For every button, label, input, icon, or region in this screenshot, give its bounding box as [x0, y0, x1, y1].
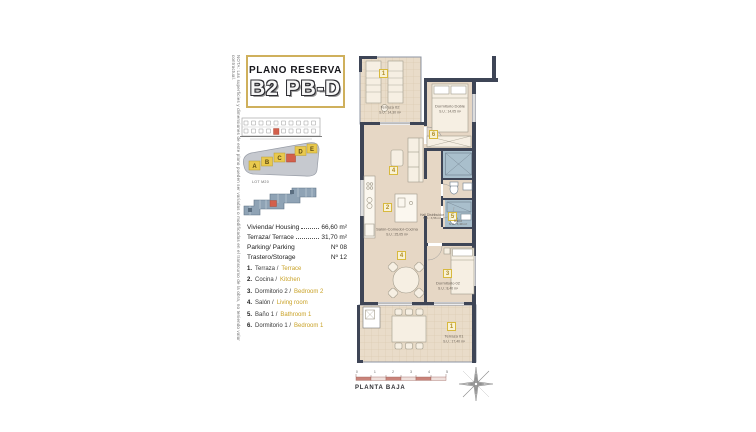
floor-plan: 1 6 4 2 5 4 3 1 Terraza 02 S.U.: 14,30 m… — [350, 48, 500, 370]
room-label-salon-comedor-cocina: Salón-Comedor-Cocina S.U.: 25,05 m² — [376, 228, 418, 237]
legend-item-dormitorio1: 6. Dormitorio 1 / Bedroom 1 — [247, 323, 323, 329]
room-area: S.U.: 14,30 m² — [379, 110, 401, 114]
legend-spanish: Terraza / — [255, 266, 278, 272]
plan-kicker: PLANO RESERVA — [248, 65, 343, 76]
legend-english: Living room — [277, 300, 308, 306]
room-area: S.U.: 14,05 m² — [435, 109, 465, 113]
legend-english: Bathroom 1 — [280, 312, 311, 318]
spec-table: Vivienda/ Housing 66,60 m² Terraza/ Terr… — [247, 221, 347, 261]
floor-plan-graphic — [350, 48, 500, 370]
plan-title: B2 PB-D — [248, 77, 343, 101]
site-block-c-label: C — [277, 156, 282, 162]
legend-english: Terrace — [281, 266, 301, 272]
spec-label: Parking/ Parking — [247, 244, 295, 251]
spec-value: 31,70 m² — [321, 234, 347, 241]
spec-row-housing: Vivienda/ Housing 66,60 m² — [247, 221, 347, 231]
badge-dormitorio-1: 6 — [429, 130, 438, 139]
plan-title-box: PLANO RESERVA B2 PB-D — [246, 55, 345, 108]
spec-value: 66,60 m² — [321, 224, 347, 231]
badge-terraza-2: 1 — [379, 69, 388, 78]
site-block-d-label: D — [298, 150, 303, 156]
scale-bar — [354, 374, 450, 384]
room-name: Terraza 02 — [379, 106, 401, 111]
room-name: Salón-Comedor-Cocina — [376, 228, 418, 233]
room-label-terraza-1: Terraza 01 S.U.: 17,40 m² — [443, 335, 465, 344]
dotted-leader — [296, 238, 320, 239]
block-plan-thumbnail — [240, 184, 320, 218]
room-area: S.U.: 8,40 m² — [436, 286, 460, 290]
legend-item-terraza: 1. Terraza / Terrace — [247, 266, 323, 272]
site-plan-thumbnail: A B C D E — [238, 141, 323, 179]
room-name: Terraza 01 — [443, 335, 465, 340]
badge-dormitorio-2: 3 — [443, 269, 452, 278]
badge-salon: 4 — [389, 166, 398, 175]
legend-item-dormitorio2: 3. Dormitorio 2 / Bedroom 2 — [247, 289, 323, 295]
site-block-e-label: E — [310, 147, 314, 153]
room-label-dormitorio-2: Dormitorio 02 S.U.: 8,40 m² — [436, 282, 460, 291]
badge-comedor: 4 — [397, 251, 406, 260]
legend-item-bano: 5. Baño 1 / Bathroom 1 — [247, 312, 323, 318]
dotted-leader — [301, 228, 319, 229]
site-block-a-label: A — [252, 164, 257, 170]
legend-spanish: Cocina / — [255, 277, 277, 283]
elevation-thumbnail — [240, 112, 322, 142]
room-area: S.U.: 3,40 m² — [449, 223, 467, 227]
spec-label: Trastero/Storage — [247, 254, 296, 261]
spec-row-storage: Trastero/Storage Nº 12 — [247, 251, 347, 261]
spec-label: Vivienda/ Housing — [247, 224, 299, 231]
room-area: S.U.: 3,56 m² — [420, 217, 444, 221]
legend-item-salon: 4. Salón / Living room — [247, 300, 323, 306]
room-name: Dormitorio Doble — [435, 105, 465, 110]
legend-spanish: Baño 1 / — [255, 312, 277, 318]
legend-spanish: Salón / — [255, 300, 274, 306]
badge-terraza-1: 1 — [447, 322, 456, 331]
site-block-b-label: B — [265, 160, 270, 166]
room-area: S.U.: 17,40 m² — [443, 339, 465, 343]
room-label-hall: Hall Distribuidor S.U.: 3,56 m² — [420, 213, 444, 221]
legend-number: 4. — [247, 300, 252, 306]
compass-rose-icon — [458, 366, 494, 402]
legend-spanish: Dormitorio 1 / — [255, 323, 291, 329]
legend-english: Bedroom 1 — [294, 323, 323, 329]
room-area: S.U.: 25,05 m² — [376, 232, 418, 236]
spec-value: Nº 12 — [331, 254, 347, 261]
legend-number: 1. — [247, 266, 252, 272]
badge-cocina: 2 — [383, 203, 392, 212]
spec-row-terrace: Terraza/ Terrace 31,70 m² — [247, 231, 347, 241]
legend-number: 2. — [247, 277, 252, 283]
legend-english: Kitchen — [280, 277, 300, 283]
spec-value: Nº 08 — [331, 244, 347, 251]
legend-english: Bedroom 2 — [294, 289, 323, 295]
room-name: Dormitorio 02 — [436, 282, 460, 287]
legend-spanish: Dormitorio 2 / — [255, 289, 291, 295]
floor-caption: PLANTA BAJA — [355, 385, 405, 391]
room-legend: 1. Terraza / Terrace 2. Cocina / Kitchen… — [247, 266, 323, 334]
room-label-terraza-2: Terraza 02 S.U.: 14,30 m² — [379, 106, 401, 115]
spec-row-parking: Parking/ Parking Nº 08 — [247, 241, 347, 251]
room-label-dormitorio-1: Dormitorio Doble S.U.: 14,05 m² — [435, 105, 465, 114]
room-label-bano: Baño S.U.: 3,40 m² — [449, 219, 467, 227]
legend-number: 5. — [247, 312, 252, 318]
legend-item-cocina: 2. Cocina / Kitchen — [247, 277, 323, 283]
legend-number: 6. — [247, 323, 252, 329]
legend-number: 3. — [247, 289, 252, 295]
spec-label: Terraza/ Terrace — [247, 234, 294, 241]
